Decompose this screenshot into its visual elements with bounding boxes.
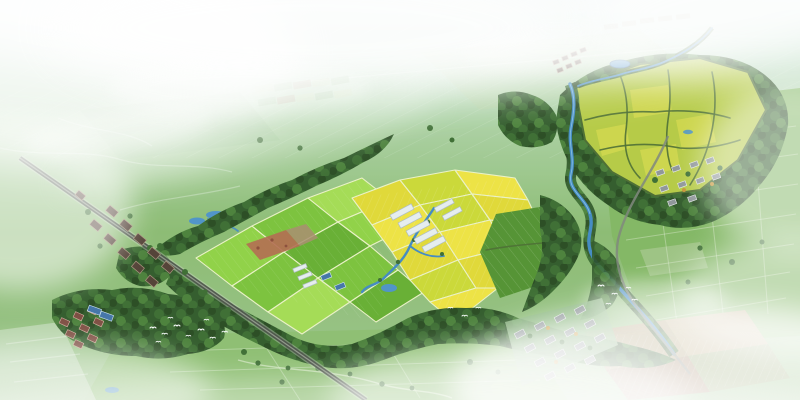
aerial-landscape-rendering: Aerial rendering of a rural agricultural… [0,0,800,400]
mist-wisp [110,58,370,118]
mist-wisp [465,32,655,72]
mist-puff [583,278,727,322]
scene-svg: Aerial rendering of a rural agricultural… [0,0,800,400]
